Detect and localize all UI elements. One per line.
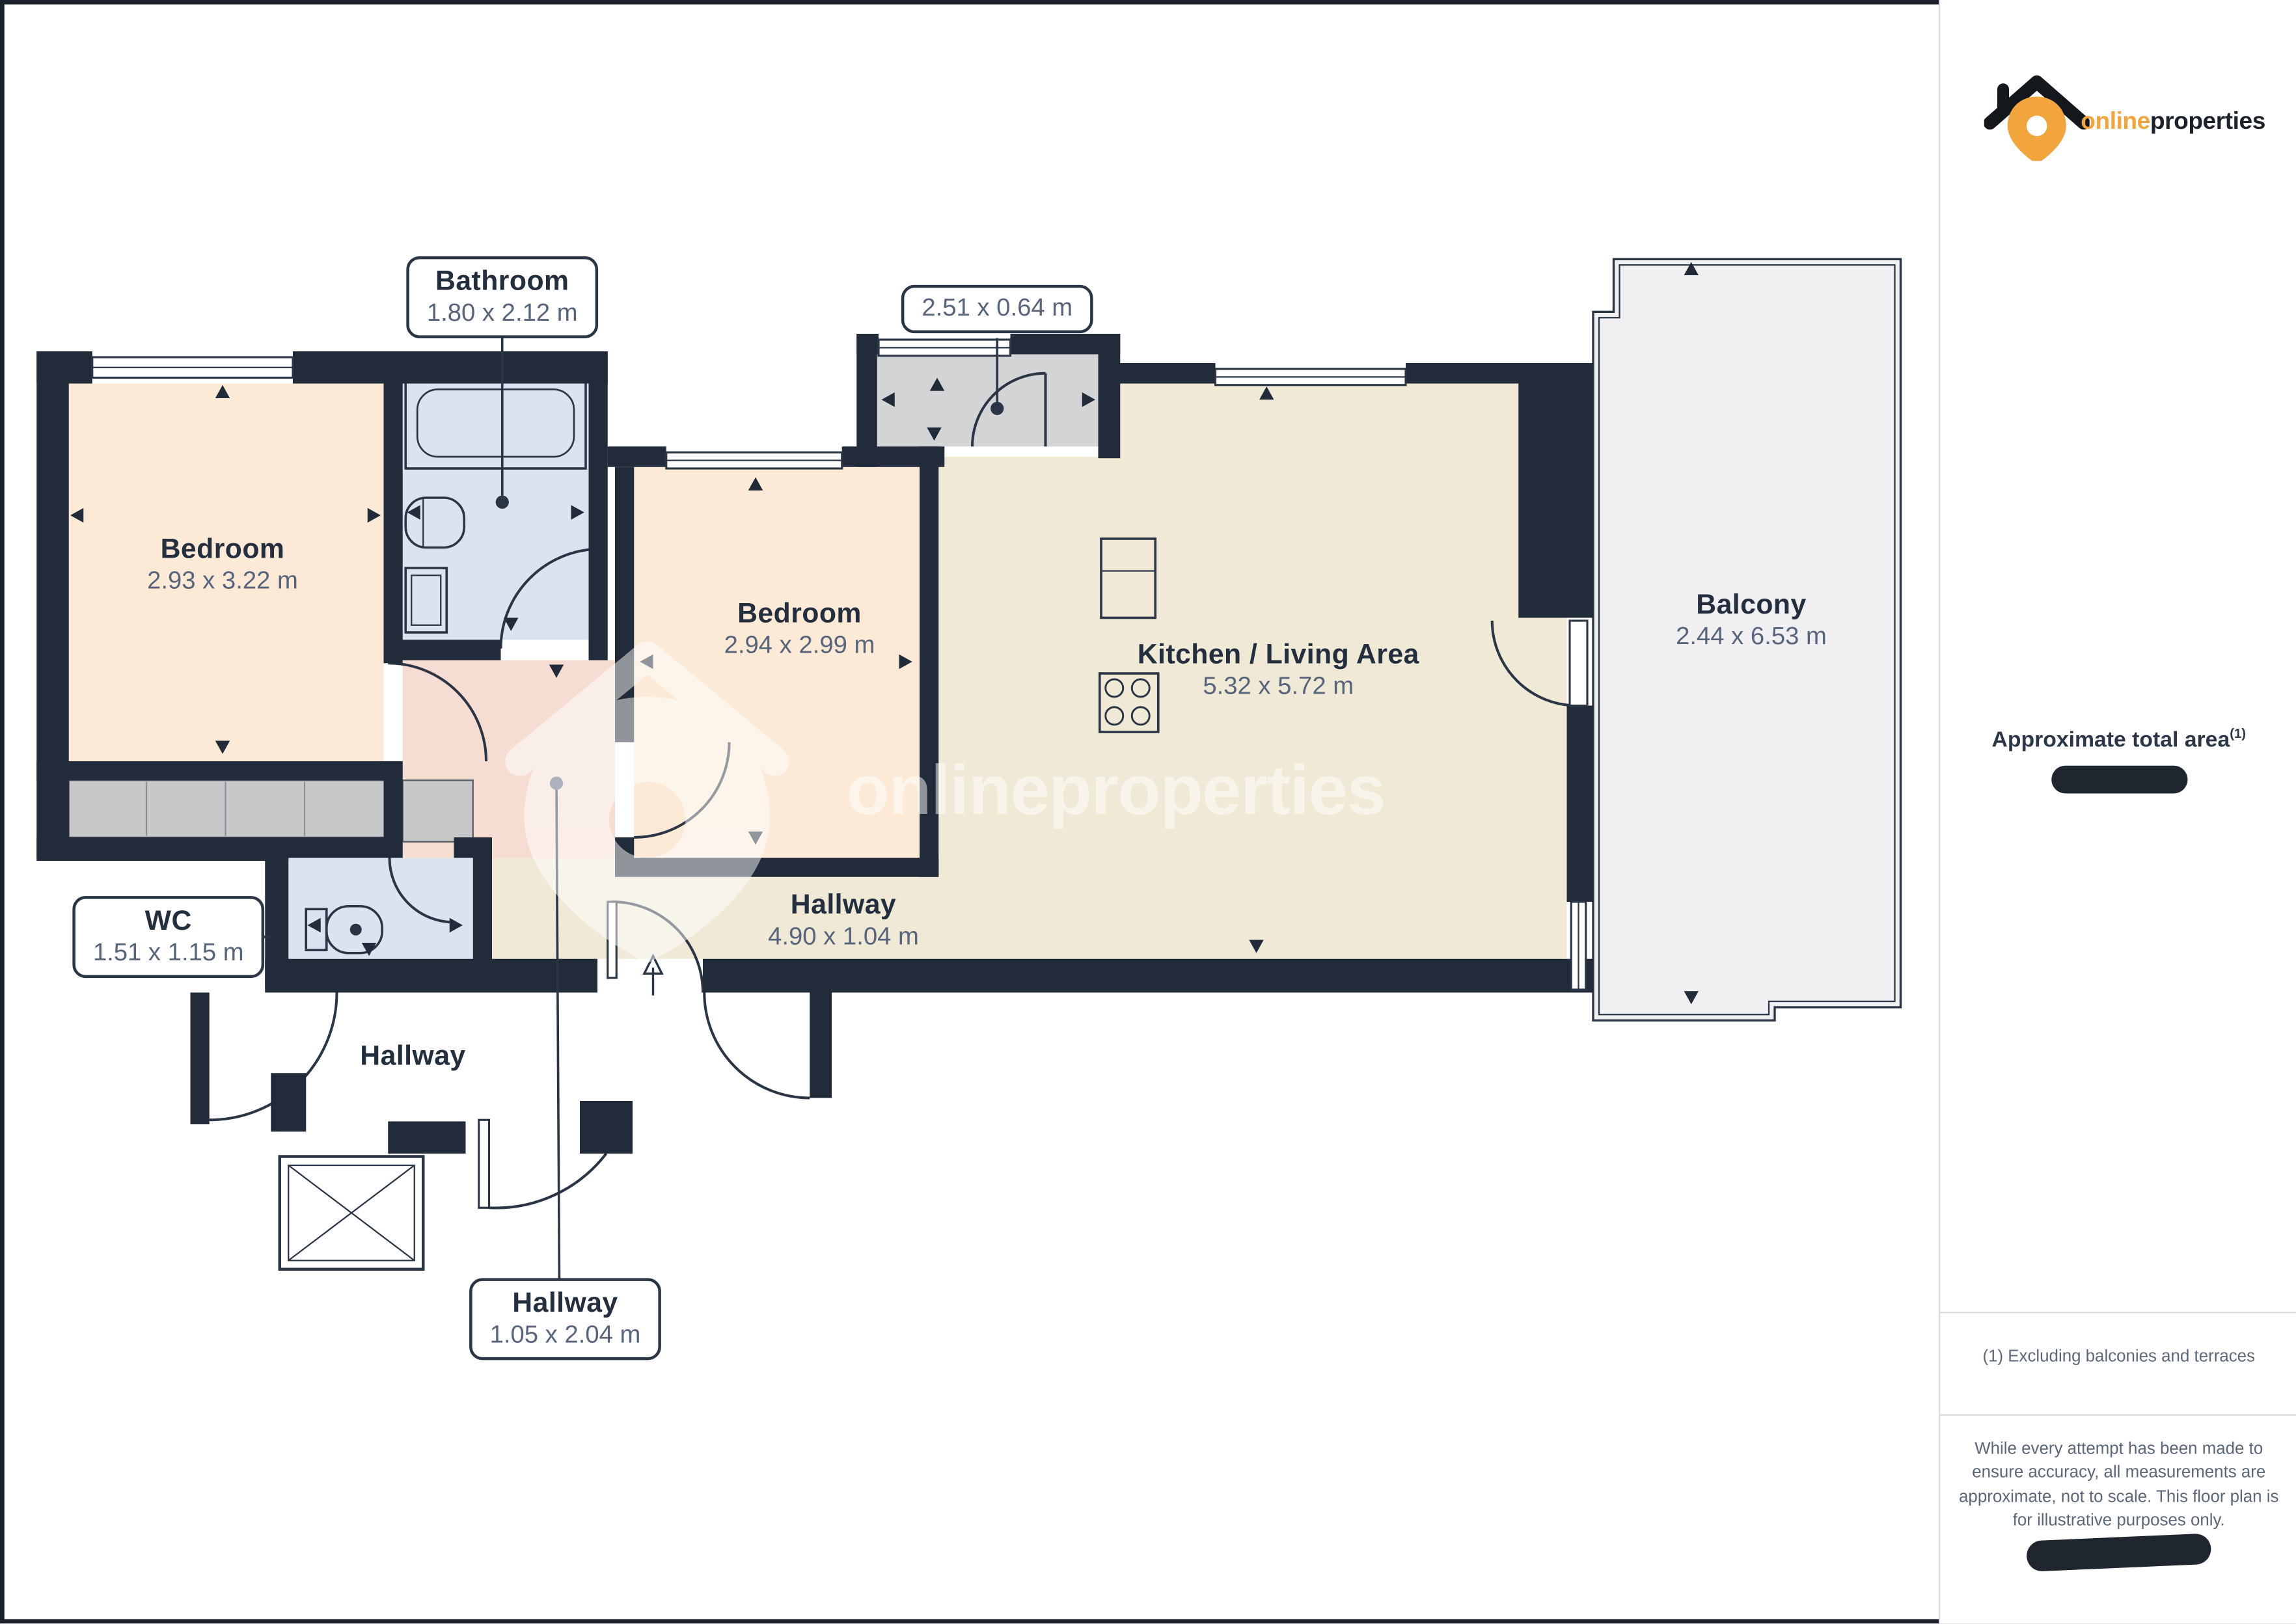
footnote-text: (1) Excluding balconies and terraces [1952, 1348, 2286, 1366]
label-kitchen-living: Kitchen / Living Area 5.32 x 5.72 m [1138, 638, 1419, 703]
label-bedroom2: Bedroom 2.94 x 2.99 m [724, 597, 875, 662]
label-storage-dims: 2.51 x 0.64 m [922, 293, 1073, 324]
logo: onlineproperties [1984, 70, 2254, 173]
label-wc-name: WC [93, 905, 244, 939]
label-balcony-dims: 2.44 x 6.53 m [1676, 623, 1827, 653]
label-hallway-common: Hallway [360, 1040, 465, 1074]
label-wc: WC 1.51 x 1.15 m [72, 896, 264, 978]
label-balcony-name: Balcony [1676, 589, 1827, 623]
label-wc-dims: 1.51 x 1.15 m [93, 939, 244, 969]
sidebar-divider-top [1940, 1312, 2296, 1313]
label-bathroom-name: Bathroom [427, 265, 578, 299]
logo-text: onlineproperties [2081, 109, 2265, 137]
label-balcony: Balcony 2.44 x 6.53 m [1676, 589, 1827, 653]
label-hallway-common-name: Hallway [360, 1040, 465, 1074]
sidebar: onlineproperties Approximate total area(… [1939, 0, 2296, 1623]
label-bedroom2-name: Bedroom [724, 597, 875, 631]
label-hallway-entry-name: Hallway [490, 1287, 641, 1321]
label-bathroom-dims: 1.80 x 2.12 m [427, 299, 578, 329]
label-kitchen-name: Kitchen / Living Area [1138, 638, 1419, 672]
label-hallway-main: Hallway 4.90 x 1.04 m [768, 889, 919, 953]
label-bathroom: Bathroom 1.80 x 2.12 m [406, 256, 598, 338]
logo-house-pin-icon [1984, 70, 2090, 161]
stairwell-door-leaf [479, 1120, 489, 1208]
label-storage: 2.51 x 0.64 m [901, 285, 1093, 333]
label-hallway-entry-dims: 1.05 x 2.04 m [490, 1321, 641, 1351]
approx-total-area-superscript: (1) [2230, 726, 2246, 741]
redacted-reference-value [2026, 1533, 2211, 1572]
disclaimer-text: While every attempt has been made to ens… [1955, 1438, 2283, 1534]
door-stairwell [489, 1154, 607, 1208]
label-kitchen-dims: 5.32 x 5.72 m [1138, 672, 1419, 703]
label-hallway-entry: Hallway 1.05 x 2.04 m [469, 1278, 661, 1360]
label-bedroom1-dims: 2.93 x 3.22 m [147, 567, 298, 597]
approx-total-area-text: Approximate total area [1991, 727, 2230, 752]
sidebar-divider-bottom [1940, 1414, 2296, 1416]
door-common-right [704, 993, 810, 1098]
label-bedroom1-name: Bedroom [147, 533, 298, 567]
label-bedroom2-dims: 2.94 x 2.99 m [724, 631, 875, 662]
logo-text-properties: properties [2150, 109, 2265, 135]
redacted-area-value [2051, 766, 2187, 794]
label-hallway-main-name: Hallway [768, 889, 919, 923]
closet-strip [69, 780, 387, 837]
approx-total-area-label: Approximate total area(1) [1940, 726, 2296, 753]
balcony-door-leaf [1570, 621, 1587, 706]
label-hallway-main-dims: 4.90 x 1.04 m [768, 923, 919, 953]
watermark-text: onlineproperties [847, 750, 1386, 829]
closet-block [403, 780, 473, 842]
room-bathroom [403, 384, 589, 640]
floorplan-page: onlineproperties Bedroom 2.93 x 3.22 m B… [0, 0, 2296, 1623]
label-bedroom1: Bedroom 2.93 x 3.22 m [147, 533, 298, 597]
logo-text-online: online [2081, 109, 2150, 135]
